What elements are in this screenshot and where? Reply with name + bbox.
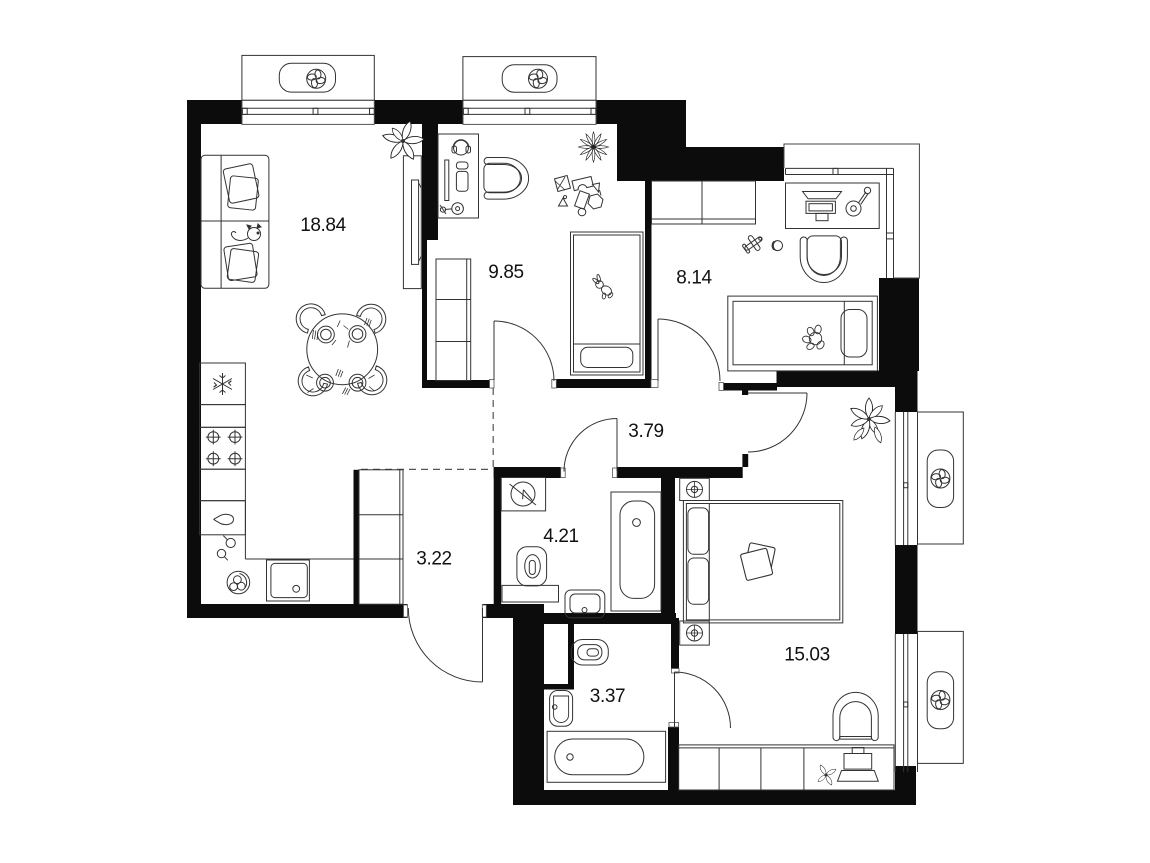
- svg-text:3.22: 3.22: [416, 549, 451, 570]
- svg-text:9.85: 9.85: [488, 262, 523, 283]
- svg-text:3.79: 3.79: [628, 421, 663, 442]
- svg-text:3.37: 3.37: [590, 686, 625, 707]
- svg-text:4.21: 4.21: [543, 526, 578, 547]
- svg-text:18.84: 18.84: [300, 215, 346, 236]
- svg-text:15.03: 15.03: [784, 645, 830, 666]
- svg-text:8.14: 8.14: [676, 268, 712, 289]
